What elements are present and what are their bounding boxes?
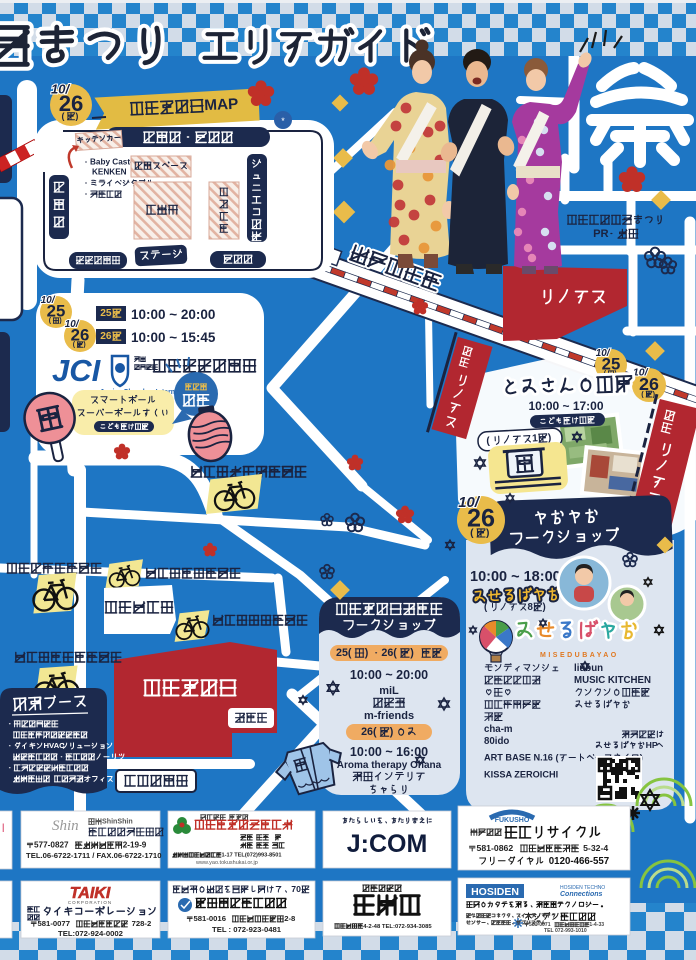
- svg-text:): ): [59, 318, 61, 325]
- svg-text:0120-466-557: 0120-466-557: [549, 856, 609, 867]
- svg-text:80ido: 80ido: [484, 736, 509, 747]
- svg-text:FUKUSHO: FUKUSHO: [495, 817, 530, 824]
- svg-text:26(: 26(: [361, 726, 377, 738]
- svg-text:25(: 25(: [336, 647, 352, 659]
- svg-text:): ): [543, 602, 546, 613]
- svg-text:www.yao.tokushukai.or.jp: www.yao.tokushukai.or.jp: [195, 860, 258, 866]
- svg-text:1-4-33: 1-4-33: [589, 922, 604, 928]
- svg-text:ShinShin: ShinShin: [102, 818, 133, 826]
- svg-text:HVAC: HVAC: [44, 741, 66, 750]
- svg-text:581-0862: 581-0862: [477, 843, 514, 853]
- svg-text:10:00 ~ 20:00: 10:00 ~ 20:00: [131, 307, 215, 322]
- svg-text:581-0016: 581-0016: [194, 914, 227, 923]
- svg-text:ART BASE N.16 (: ART BASE N.16 (: [484, 752, 559, 762]
- svg-text:TEL:072-924-0002: TEL:072-924-0002: [58, 929, 123, 938]
- svg-text:MAP: MAP: [204, 96, 239, 114]
- svg-text:1-17 TEL(072)993-8501: 1-17 TEL(072)993-8501: [222, 853, 282, 859]
- svg-text:Shin: Shin: [52, 818, 79, 834]
- svg-text:HOSIDEN: HOSIDEN: [471, 886, 519, 898]
- svg-text:25: 25: [100, 308, 112, 319]
- svg-text:MUSIC KITCHEN: MUSIC KITCHEN: [574, 675, 651, 686]
- svg-text:): ): [75, 111, 78, 121]
- svg-text:4-2-48 TEL:072-934-3085: 4-2-48 TEL:072-934-3085: [363, 924, 432, 930]
- svg-text:): ): [390, 726, 394, 738]
- svg-text:728-2: 728-2: [132, 919, 152, 928]
- svg-text:): ): [486, 528, 489, 539]
- svg-text:10:00 ~ 20:00: 10:00 ~ 20:00: [350, 668, 428, 682]
- svg-text:(: (: [62, 111, 65, 121]
- svg-text:Connections: Connections: [560, 891, 602, 898]
- svg-text:cha-m: cha-m: [484, 724, 513, 735]
- svg-text:10:00 ~ 18:00: 10:00 ~ 18:00: [470, 569, 561, 585]
- svg-text:m-friends: m-friends: [364, 710, 414, 722]
- svg-text:): ): [83, 342, 85, 349]
- svg-text:|: |: [2, 822, 4, 832]
- svg-text:HP: HP: [646, 740, 658, 750]
- svg-text:5-32-4: 5-32-4: [583, 843, 608, 853]
- svg-text:KENKEN: KENKEN: [92, 168, 127, 177]
- svg-text:577-0827: 577-0827: [34, 841, 69, 850]
- svg-text:TEL : 072-923-0481: TEL : 072-923-0481: [212, 925, 282, 934]
- svg-text:2-8: 2-8: [284, 914, 296, 923]
- svg-text:JCI: JCI: [52, 353, 102, 388]
- svg-text:): ): [365, 647, 369, 659]
- svg-text:): ): [548, 433, 552, 444]
- svg-text:Aroma therapy Ohana: Aroma therapy Ohana: [337, 760, 442, 771]
- svg-text:10:00 ~ 17:00: 10:00 ~ 17:00: [528, 399, 603, 413]
- svg-text:70: 70: [291, 884, 301, 894]
- svg-text:2-19-9: 2-19-9: [123, 841, 147, 850]
- svg-text:TEL 072-993-1010: TEL 072-993-1010: [544, 928, 587, 934]
- svg-text:26(: 26(: [381, 647, 397, 659]
- svg-text:MISEDUBAYAO: MISEDUBAYAO: [540, 652, 619, 659]
- svg-text:(: (: [470, 528, 474, 539]
- svg-text:): ): [410, 647, 414, 659]
- svg-text:PR: PR: [593, 228, 609, 240]
- svg-text:8: 8: [528, 602, 534, 613]
- svg-text:26: 26: [100, 331, 112, 342]
- svg-text:CORPORATION: CORPORATION: [68, 900, 112, 905]
- svg-text:*: *: [281, 116, 285, 126]
- svg-text:1: 1: [532, 433, 539, 444]
- svg-text:TEL.06-6722-1711 / FAX.06-6722: TEL.06-6722-1711 / FAX.06-6722-1710: [26, 851, 161, 860]
- svg-text:J:COM: J:COM: [347, 830, 428, 858]
- svg-text:10:00 ~ 15:45: 10:00 ~ 15:45: [131, 330, 216, 345]
- svg-text:581-0077: 581-0077: [38, 919, 71, 928]
- svg-text:miL: miL: [379, 685, 399, 697]
- svg-text:KISSA ZEROICHI: KISSA ZEROICHI: [484, 769, 558, 779]
